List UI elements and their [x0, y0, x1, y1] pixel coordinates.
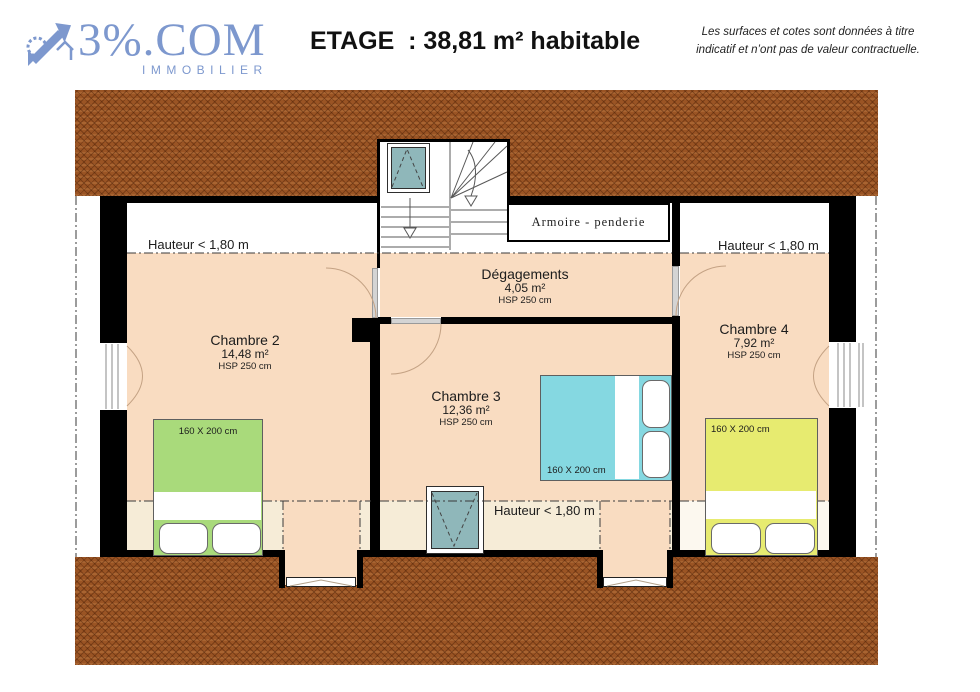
bed-chambre2-size-label: 160 X 200 cm: [179, 426, 238, 437]
height-note-right: Hauteur < 1,80 m: [718, 238, 819, 253]
stairwell-wall-right: [507, 139, 510, 199]
wall-left-upper: [100, 196, 127, 343]
dormer-left: [283, 501, 360, 585]
bed-chambre4-pillow-right: [765, 523, 815, 554]
degagements-hsp: HSP 250 cm: [440, 296, 610, 307]
brand-name: 3%.COM: [78, 17, 265, 64]
bed-chambre4-pillow-left: [711, 523, 761, 554]
bed-chambre2: 160 X 200 cm: [153, 419, 263, 556]
velux-stairwell-glass: [391, 147, 426, 189]
bed-chambre3-pillow-bottom: [642, 431, 670, 478]
velux-stairwell: [387, 143, 430, 193]
degagements-area: 4,05 m²: [440, 282, 610, 296]
door-leaf-chambre2: [372, 268, 378, 318]
window-left-wall: [100, 343, 127, 410]
bed-chambre4-size-label: 160 X 200 cm: [711, 424, 770, 435]
velux-chambre3: [426, 486, 484, 554]
velux-chambre3-glass: [431, 491, 479, 549]
chambre4-area: 7,92 m²: [669, 337, 839, 351]
floor-plan-page: 3%.COM IMMOBILIER ETAGE : 38,81 m² habit…: [0, 0, 980, 692]
wall-top-left: [100, 196, 378, 203]
chambre3-hsp: HSP 250 cm: [381, 418, 551, 429]
closet-armoire: Armoire - penderie: [507, 203, 670, 242]
stairwell-wall-top: [377, 139, 510, 142]
door-leaf-chambre3: [391, 318, 441, 324]
dormer-left-window: [286, 577, 356, 587]
height-note-bottom: Hauteur < 1,80 m: [494, 503, 595, 518]
chambre2-area: 14,48 m²: [160, 348, 330, 362]
label-chambre4: Chambre 4 7,92 m² HSP 250 cm: [669, 321, 839, 362]
page-title: ETAGE : 38,81 m² habitable: [310, 27, 640, 56]
wall-right-lower: [829, 408, 856, 557]
height-note-left: Hauteur < 1,80 m: [148, 237, 249, 252]
bed-chambre3: 160 X 200 cm: [540, 375, 672, 481]
door-leaf-chambre4: [672, 266, 679, 316]
disclaimer-line1: Les surfaces et cotes sont données à tit…: [684, 23, 932, 41]
bed-chambre2-pillow-left: [159, 523, 208, 554]
degagements-name: Dégagements: [440, 266, 610, 282]
wall-top-right: [507, 196, 856, 203]
disclaimer-text: Les surfaces et cotes sont données à tit…: [684, 23, 932, 60]
bed-chambre2-fold: [154, 492, 261, 520]
label-chambre3: Chambre 3 12,36 m² HSP 250 cm: [381, 388, 551, 429]
chambre2-hsp: HSP 250 cm: [160, 362, 330, 373]
bed-chambre3-fold: [615, 376, 639, 479]
chambre3-area: 12,36 m²: [381, 404, 551, 418]
wall-pier: [352, 318, 380, 342]
wall-chambre2-chambre3: [370, 318, 380, 557]
brand-subtitle: IMMOBILIER: [142, 63, 268, 77]
label-degagements: Dégagements 4,05 m² HSP 250 cm: [440, 266, 610, 307]
chambre4-hsp: HSP 250 cm: [669, 351, 839, 362]
dormer-right-wall-a: [597, 550, 603, 588]
wall-left-lower: [100, 410, 127, 557]
bed-chambre4: 160 X 200 cm: [705, 418, 818, 556]
closet-label: Armoire - penderie: [532, 215, 646, 230]
brand-logo-icon: [24, 20, 76, 70]
dormer-right-wall-b: [667, 550, 673, 588]
dormer-right-window: [603, 577, 667, 587]
disclaimer-line2: indicatif et n’ont pas de valeur contrac…: [684, 41, 932, 59]
chambre3-name: Chambre 3: [381, 388, 551, 404]
dormer-left-wall-b: [357, 550, 363, 588]
bed-chambre3-pillow-top: [642, 380, 670, 428]
dormer-left-wall-a: [279, 550, 285, 588]
bed-chambre4-fold: [706, 491, 816, 519]
bed-chambre3-size-label: 160 X 200 cm: [547, 465, 606, 476]
wall-degagements-chambre3-b: [441, 317, 676, 324]
wall-chambre4-upper: [672, 196, 680, 266]
roof-band-bottom: [75, 557, 878, 665]
wall-degagements-chambre3-a: [377, 317, 391, 324]
dormer-right: [600, 501, 670, 585]
stairwell-wall-left: [377, 139, 380, 268]
chambre4-name: Chambre 4: [669, 321, 839, 337]
arrow-house-icon: [24, 20, 76, 70]
label-chambre2: Chambre 2 14,48 m² HSP 250 cm: [160, 332, 330, 373]
bed-chambre2-pillow-right: [212, 523, 261, 554]
chambre2-name: Chambre 2: [160, 332, 330, 348]
